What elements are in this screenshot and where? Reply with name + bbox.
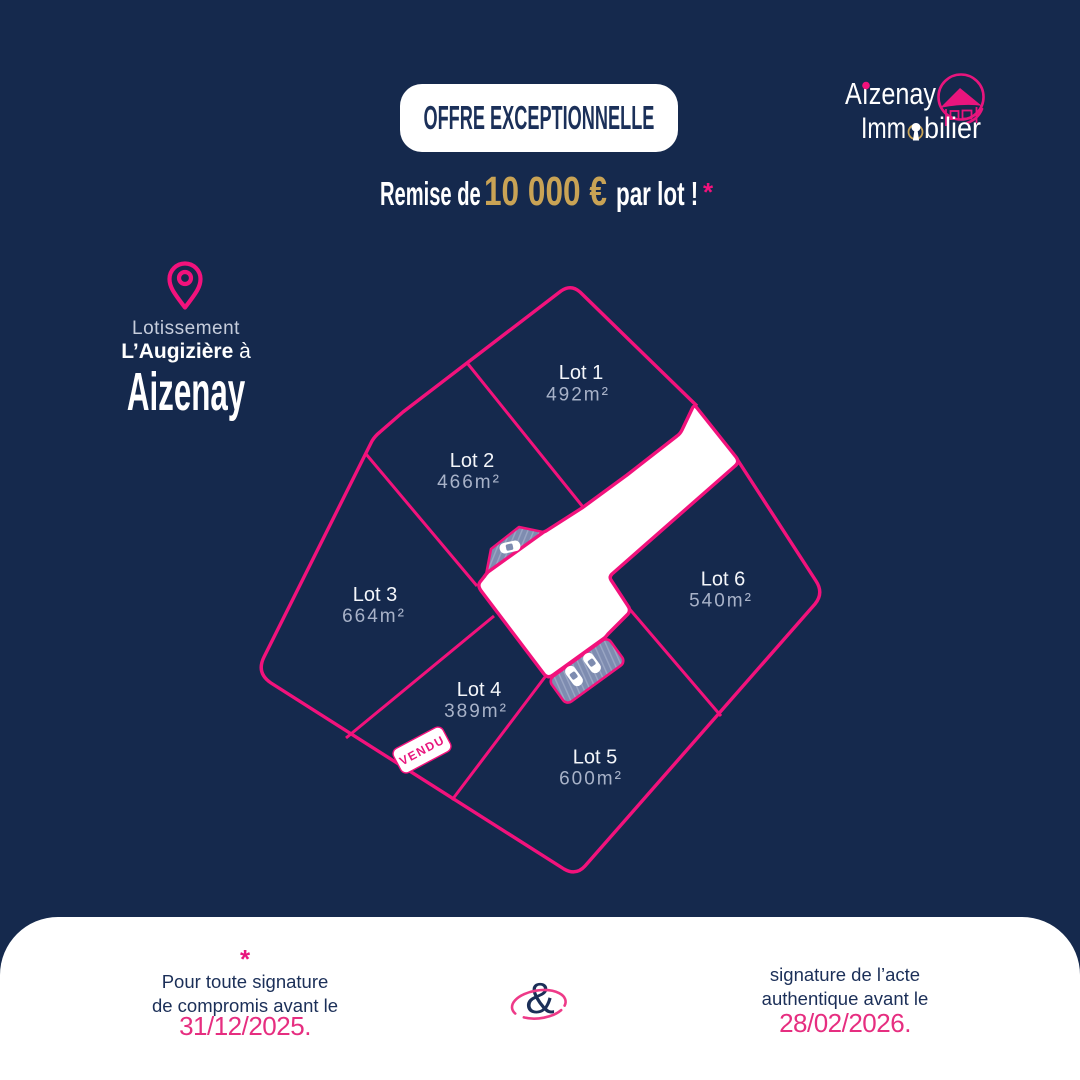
svg-text:Lot 5: Lot 5 <box>573 747 617 769</box>
svg-text:492m²: 492m² <box>546 385 610 406</box>
svg-text:Lot 1: Lot 1 <box>559 362 603 384</box>
svg-text:Lot 2: Lot 2 <box>450 450 494 472</box>
svg-text:540m²: 540m² <box>689 591 753 612</box>
svg-text:Lot 4: Lot 4 <box>457 679 501 701</box>
svg-text:466m²: 466m² <box>437 472 501 493</box>
svg-text:600m²: 600m² <box>559 769 623 790</box>
svg-text:Lot 3: Lot 3 <box>353 584 397 606</box>
svg-text:389m²: 389m² <box>444 701 508 722</box>
svg-text:664m²: 664m² <box>342 606 406 627</box>
svg-text:Lot 6: Lot 6 <box>701 569 745 591</box>
